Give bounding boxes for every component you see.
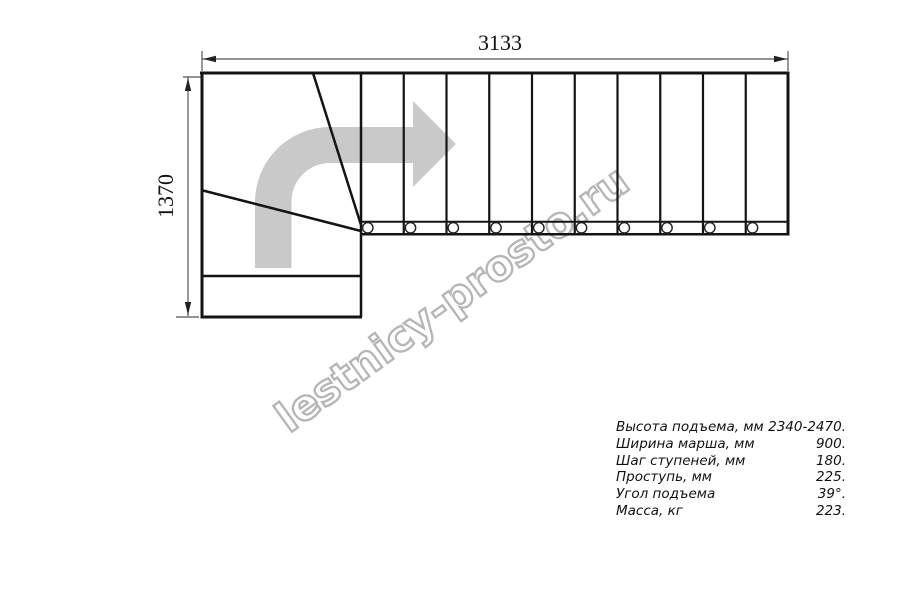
- direction-arrow-icon: [255, 101, 456, 268]
- spec-label: Проступь, мм: [616, 469, 712, 486]
- spec-value: 900.: [816, 436, 846, 453]
- spec-row-height: Высота подъема, мм 2340-2470.: [616, 419, 846, 436]
- spec-row-mass: Масса, кг 223.: [616, 503, 846, 520]
- top-dimension-label: 3133: [478, 30, 522, 56]
- spec-label: Шаг ступеней, мм: [616, 453, 745, 470]
- stair-plan-canvas: lestnicy-prosto.ru: [0, 0, 900, 600]
- specs-table: Высота подъема, мм 2340-2470. Ширина мар…: [616, 419, 846, 520]
- spec-label: Ширина марша, мм: [616, 436, 755, 453]
- spec-row-step-pitch: Шаг ступеней, мм 180.: [616, 453, 846, 470]
- spec-label: Угол подъема: [616, 486, 715, 503]
- bolt-circles: [363, 223, 758, 233]
- tread-lines: [404, 73, 746, 234]
- spec-row-angle: Угол подъема 39°.: [616, 486, 846, 503]
- spec-value: 223.: [816, 503, 846, 520]
- spec-value: 180.: [816, 453, 846, 470]
- spec-value: 39°.: [818, 486, 846, 503]
- spec-label: Масса, кг: [616, 503, 683, 520]
- spec-value: 2340-2470.: [768, 419, 846, 436]
- spec-row-tread: Проступь, мм 225.: [616, 469, 846, 486]
- spec-row-flight-width: Ширина марша, мм 900.: [616, 436, 846, 453]
- left-dimension-label: 1370: [153, 174, 179, 218]
- spec-label: Высота подъема, мм: [616, 419, 764, 436]
- spec-value: 225.: [816, 469, 846, 486]
